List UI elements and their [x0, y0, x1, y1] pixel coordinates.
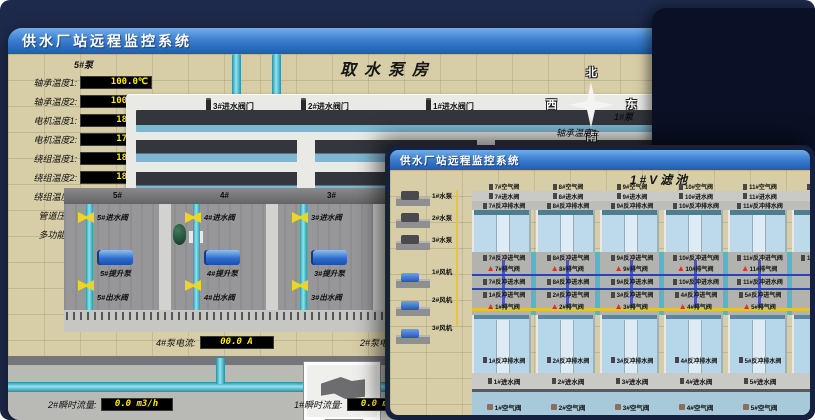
reading-label: 电机温度2:: [12, 133, 80, 146]
alarm-valve-icon: [616, 304, 621, 309]
filter-cell: [536, 210, 595, 252]
inlet-valve[interactable]: 8#进水阀: [536, 191, 600, 201]
valve-label: 2#反冲进气阀: [553, 290, 590, 299]
valve-icon: [680, 378, 684, 384]
exhaust-valve[interactable]: 4#排气阀: [664, 302, 728, 311]
valve-label: 5#进水阀: [750, 376, 777, 386]
backwash-air-valve[interactable]: 7#反冲进气阀: [472, 253, 536, 262]
valve-icon: [552, 378, 556, 384]
lift-pump-icon[interactable]: [97, 250, 133, 265]
equipment-unit[interactable]: 3#风机: [392, 318, 472, 346]
equipment-unit[interactable]: 1#风机: [392, 262, 472, 290]
valve-icon: [488, 378, 492, 384]
backwash-water-valve[interactable]: 9#反冲进水阀: [600, 277, 664, 286]
exhaust-valve[interactable]: 1#排气阀: [472, 302, 536, 311]
bay-inlet-label: 4#进水阀: [204, 212, 235, 223]
air-valve[interactable]: 4#空气阀: [664, 402, 728, 412]
valve-label: 4#反冲进气阀: [681, 290, 718, 299]
valve-icon: [611, 357, 615, 363]
alarm-valve-icon: [743, 266, 748, 271]
exhaust-valve[interactable]: 11#排气阀: [728, 264, 792, 273]
filter-cell: [472, 210, 531, 252]
valve-icon: [611, 203, 615, 209]
valve-label: 8#空气阀: [559, 182, 584, 191]
valve-label: 12#反冲进气阀: [807, 253, 810, 262]
valve-label: 8#反冲排水阀: [553, 201, 590, 210]
backwash-water-valve[interactable]: 10#反冲进水阀: [664, 277, 728, 286]
motor-icon: [401, 191, 419, 200]
equipment-label: 3#风机: [432, 322, 452, 332]
valve-label: 7#空气阀: [495, 182, 520, 191]
top-inlet-valve-row: 7#进水阀8#进水阀9#进水阀10#进水阀11#进水阀: [472, 191, 810, 201]
valve-label: 11#反冲进气阀: [743, 253, 783, 262]
valve-label: 11#排气阀: [750, 264, 778, 273]
valve-icon: [547, 279, 551, 285]
reading-label: 轴承温度1:: [12, 76, 80, 89]
equipment-unit[interactable]: 2#风机: [392, 290, 472, 318]
valve-icon: [615, 404, 621, 410]
inlet-valve[interactable]: 11#进水阀: [728, 191, 792, 201]
backwash-drain-valve[interactable]: 10#反冲排水阀: [664, 201, 728, 210]
exhaust-valve[interactable]: 10#排气阀: [664, 264, 728, 273]
valve-icon: [547, 357, 551, 363]
valve-icon: [673, 255, 677, 261]
backwash-drain-valve[interactable]: 5#反冲排水阀: [728, 355, 792, 365]
filter-grid: 7#空气阀8#空气阀9#空气阀10#空气阀11#空气阀12#空气阀 7#进水阀8…: [472, 182, 810, 415]
inlet-valve[interactable]: 10#进水阀: [664, 191, 728, 201]
scada-desktop: 供水厂站远程监控系统 取水泵房 5#泵 轴承温度1: 100.0℃ 轴承温度2:…: [0, 0, 815, 420]
reading-row: 轴承温度1: 100.0℃: [12, 75, 168, 89]
valve-label: 9#进水阀: [623, 192, 648, 201]
mid-backwash-air-row: 7#反冲进气阀8#反冲进气阀9#反冲进气阀10#反冲进气阀11#反冲进气阀12#…: [472, 253, 810, 262]
backwash-water-valve[interactable]: 7#反冲进水阀: [472, 277, 536, 286]
bay-number: 5#: [64, 188, 171, 204]
valve-icon: [679, 193, 683, 199]
valve-icon: [483, 292, 487, 298]
valve-label: 11#反冲排水阀: [743, 201, 783, 210]
low-backwash-drain-row: 1#反冲排水阀2#反冲排水阀3#反冲排水阀4#反冲排水阀5#反冲排水阀: [472, 355, 810, 365]
filter-cell: [792, 210, 810, 252]
equipment-label: 2#水泵: [432, 212, 452, 222]
bay-pump-label: 4#提升泵: [207, 268, 238, 279]
pump-house-scene-title: 取水泵房: [258, 56, 518, 80]
filter-cell: [664, 210, 723, 252]
valve-label: 5#排气阀: [751, 302, 776, 311]
reading-label: 电机温度1:: [12, 114, 80, 127]
valve-icon: [489, 193, 493, 199]
air-valve[interactable]: 5#空气阀: [728, 402, 792, 412]
pump-bay[interactable]: 4#进水阀 4#提升泵 4#出水阀: [171, 204, 278, 310]
valve-label: 11#反冲进水阀: [743, 277, 783, 286]
valve-label: 1#排气阀: [495, 302, 520, 311]
bay-outlet-label: 3#出水阀: [311, 292, 342, 303]
motor-icon: [401, 301, 419, 310]
backwash-air-valve[interactable]: 5#反冲进气阀: [728, 290, 792, 299]
valve-icon: [737, 203, 741, 209]
valve-label: 4#反冲排水阀: [681, 356, 718, 365]
valve-icon: [483, 357, 487, 363]
valve-icon: [801, 255, 805, 261]
backwash-air-valve[interactable]: 11#反冲进气阀: [728, 253, 792, 262]
valve-icon: [679, 184, 683, 190]
valve-icon: [673, 279, 677, 285]
valve-label: 7#反冲排水阀: [489, 201, 526, 210]
filter-pool-window-title: 供水厂站远程监控系统: [400, 153, 520, 168]
valve-label: 2#排气阀: [559, 302, 584, 311]
valve-label: 4#空气阀: [687, 402, 714, 412]
valve-label: 9#空气阀: [623, 182, 648, 191]
valve-icon: [616, 378, 620, 384]
equipment-label: 1#水泵: [432, 190, 452, 200]
valve-icon: [489, 184, 493, 190]
alarm-valve-icon: [552, 266, 557, 271]
backwash-water-valve[interactable]: 8#反冲进水阀: [536, 277, 600, 286]
backwash-air-valve[interactable]: 9#反冲进气阀: [600, 253, 664, 262]
air-valve[interactable]: 8#空气阀: [536, 182, 600, 191]
backwash-air-valve[interactable]: 12#反冲进气阀: [792, 253, 810, 262]
bay-number: 4#: [171, 188, 278, 204]
motor-icon: [401, 273, 419, 282]
riser-pipe-icon: [232, 54, 241, 98]
bay-inlet-label: 3#进水阀: [311, 212, 342, 223]
current-label: 4#泵电流:: [156, 336, 196, 349]
backwash-drain-valve[interactable]: 2#反冲排水阀: [536, 355, 600, 365]
alarm-valve-icon: [616, 266, 621, 271]
alarm-valve-icon: [744, 304, 749, 309]
backwash-air-valve[interactable]: 2#反冲进气阀: [536, 290, 600, 299]
exhaust-valve[interactable]: 9#排气阀: [600, 264, 664, 273]
inlet-valve[interactable]: 9#进水阀: [600, 191, 664, 201]
valve-icon: [739, 357, 743, 363]
valve-label: 7#进水阀: [495, 192, 520, 201]
valve-icon: [739, 292, 743, 298]
riser-pipe-icon: [272, 54, 281, 98]
valve-label: 8#排气阀: [559, 264, 584, 273]
reading-label: 绕组温度2:: [12, 171, 80, 184]
valve-icon: [679, 404, 685, 410]
backwash-drain-valve[interactable]: 9#反冲排水阀: [600, 201, 664, 210]
backwash-drain-valve[interactable]: 11#反冲排水阀: [728, 201, 792, 210]
valve-icon: [483, 279, 487, 285]
valve-label: 1#反冲排水阀: [489, 356, 526, 365]
valve-icon: [807, 184, 810, 190]
compass-north: 北: [586, 64, 597, 80]
valve-gallery: 7#反冲进气阀8#反冲进气阀9#反冲进气阀10#反冲进气阀11#反冲进气阀12#…: [472, 252, 810, 315]
valve-icon: [673, 203, 677, 209]
valve-label: 10#反冲进水阀: [679, 277, 719, 286]
equipment-unit[interactable]: 3#水泵: [392, 230, 472, 252]
valve-icon: [611, 255, 615, 261]
air-valve[interactable]: 12#空气阀: [792, 182, 810, 191]
valve-label: 2#空气阀: [559, 402, 586, 412]
valve-label: 8#进水阀: [559, 192, 584, 201]
bay-outlet-label: 5#出水阀: [97, 292, 128, 303]
backwash-drain-valve[interactable]: 7#反冲排水阀: [472, 201, 536, 210]
valve-label: 3#反冲排水阀: [617, 356, 654, 365]
pump-house-titlebar[interactable]: 供水厂站远程监控系统: [8, 28, 672, 54]
valve-label: 7#排气阀: [495, 264, 520, 273]
valve-icon: [617, 193, 621, 199]
valve-label: 3#反冲进气阀: [617, 290, 654, 299]
valve-icon: [611, 279, 615, 285]
valve-icon: [743, 404, 749, 410]
reading-label: 轴承温度2:: [12, 95, 80, 108]
air-valve[interactable]: 10#空气阀: [664, 182, 728, 191]
valve-label: 1#反冲进气阀: [489, 290, 526, 299]
reading-value: 100.0℃: [80, 76, 152, 89]
equipment-column: 1#水泵 2#水泵 3#水泵 1#风机: [392, 186, 472, 346]
valve-label: 10#反冲进气阀: [679, 253, 719, 262]
valve-label: 11#空气阀: [749, 182, 777, 191]
air-valve[interactable]: 3#空气阀: [600, 402, 664, 412]
pump-house-window-title: 供水厂站远程监控系统: [22, 31, 192, 51]
valve-label: 1#进水阀: [494, 376, 521, 386]
filter-cell: [600, 210, 659, 252]
flow-label: 1#瞬时流量:: [294, 398, 343, 411]
equipment-unit[interactable]: 1#水泵: [392, 186, 472, 208]
air-valve[interactable]: 7#空气阀: [472, 182, 536, 191]
valve-label: 10#进水阀: [685, 192, 713, 201]
motor-icon: [401, 235, 419, 244]
air-valve[interactable]: 9#空气阀: [600, 182, 664, 191]
equipment-label: 3#水泵: [432, 234, 452, 244]
exhaust-valve[interactable]: 3#排气阀: [600, 302, 664, 311]
bottom-air-valve-row: 1#空气阀2#空气阀3#空气阀4#空气阀5#空气阀: [472, 402, 810, 412]
bay-outlet-label: 4#出水阀: [204, 292, 235, 303]
backwash-air-valve[interactable]: 1#反冲进气阀: [472, 290, 536, 299]
window-filter-pool[interactable]: 供水厂站远程监控系统 1#V滤池 1#水泵 2#水泵: [385, 145, 815, 420]
flow-value: 0.0 m3/h: [101, 398, 173, 411]
upper-filter-cells: [472, 210, 810, 252]
valve-label: 5#反冲进气阀: [745, 290, 782, 299]
alarm-valve-icon: [680, 304, 685, 309]
valve-icon: [744, 378, 748, 384]
valve-icon: [617, 184, 621, 190]
valve-label: 2#进水阀: [558, 376, 585, 386]
equipment-label: 2#风机: [432, 294, 452, 304]
filter-pool-titlebar[interactable]: 供水厂站远程监控系统: [390, 150, 810, 170]
valve-label: 10#反冲排水阀: [679, 201, 719, 210]
valve-icon: [737, 255, 741, 261]
valve-icon: [547, 203, 551, 209]
alarm-valve-icon: [488, 266, 493, 271]
valve-icon: [551, 404, 557, 410]
filter-cell: [728, 210, 787, 252]
backwash-drain-valve[interactable]: 4#反冲排水阀: [664, 355, 728, 365]
valve-label: 4#进水阀: [686, 376, 713, 386]
backwash-air-valve[interactable]: 4#反冲进气阀: [664, 290, 728, 299]
inlet-valve[interactable]: 4#进水阀: [664, 376, 728, 386]
pipeline-equipment[interactable]: [304, 362, 380, 420]
butterfly-valve-icon: [321, 377, 365, 399]
valve-icon: [547, 255, 551, 261]
valve-label: 2#反冲排水阀: [553, 356, 590, 365]
equipment-label: 1#风机: [432, 266, 452, 276]
valve-icon: [487, 404, 493, 410]
alarm-valve-icon: [552, 304, 557, 309]
valve-label: 1#空气阀: [495, 402, 522, 412]
valve-label: 7#反冲进水阀: [489, 277, 526, 286]
pump-bay[interactable]: 5#进水阀 5#提升泵 5#出水阀: [64, 204, 171, 310]
pipe-stub-icon: [216, 358, 225, 384]
valve-icon: [743, 184, 747, 190]
backwash-drain-valve[interactable]: 3#反冲排水阀: [600, 355, 664, 365]
backwash-drain-valve[interactable]: 8#反冲排水阀: [536, 201, 600, 210]
motor-icon: [401, 213, 419, 222]
valve-label: 9#反冲进水阀: [617, 277, 654, 286]
backwash-drain-valve[interactable]: 1#反冲排水阀: [472, 355, 536, 365]
equipment-unit[interactable]: 2#水泵: [392, 208, 472, 230]
backwash-water-valve[interactable]: 11#反冲进水阀: [728, 277, 792, 286]
bay-inlet-label: 5#进水阀: [97, 212, 128, 223]
low-exhaust-row: 1#排气阀2#排气阀3#排气阀4#排气阀5#排气阀: [472, 302, 810, 311]
air-valve[interactable]: 1#空气阀: [472, 402, 536, 412]
exhaust-valve[interactable]: 5#排气阀: [728, 302, 792, 311]
low-backwash-air-row: 1#反冲进气阀2#反冲进气阀3#反冲进气阀4#反冲进气阀5#反冲进气阀: [472, 290, 810, 299]
exhaust-valve[interactable]: 2#排气阀: [536, 302, 600, 311]
mid-backwash-water-row: 7#反冲进水阀8#反冲进水阀9#反冲进水阀10#反冲进水阀11#反冲进水阀: [472, 277, 810, 286]
backwash-air-valve[interactable]: 10#反冲进气阀: [664, 253, 728, 262]
bay-number: 3#: [278, 188, 385, 204]
bay-pump-label: 3#提升泵: [314, 268, 345, 279]
valve-icon: [743, 193, 747, 199]
valve-label: 8#反冲进气阀: [553, 253, 590, 262]
current-value: 00.0 A: [200, 336, 274, 349]
pump5-header: 5#泵: [74, 58, 168, 71]
backwash-air-valve[interactable]: 8#反冲进气阀: [536, 253, 600, 262]
valve-icon: [553, 184, 557, 190]
mid-exhaust-row: 7#排气阀8#排气阀9#排气阀10#排气阀11#排气阀: [472, 264, 810, 273]
valve-label: 8#反冲进水阀: [553, 277, 590, 286]
valve-label: 10#空气阀: [685, 182, 713, 191]
inlet-valve[interactable]: 7#进水阀: [472, 191, 536, 201]
valve-label: 3#排气阀: [623, 302, 648, 311]
flow-label: 2#瞬时流量:: [48, 398, 97, 411]
exhaust-valve[interactable]: 7#排气阀: [472, 264, 536, 273]
valve-label: 3#进水阀: [622, 376, 649, 386]
air-valve[interactable]: 2#空气阀: [536, 402, 600, 412]
valve-label: 5#空气阀: [751, 402, 778, 412]
lift-pump-icon[interactable]: [204, 250, 240, 265]
valve-label: 9#排气阀: [623, 264, 648, 273]
lift-pump-icon[interactable]: [311, 250, 347, 265]
valve-label: 7#反冲进气阀: [489, 253, 526, 262]
valve-label: 11#进水阀: [749, 192, 777, 201]
backwash-air-valve[interactable]: 3#反冲进气阀: [600, 290, 664, 299]
top-air-valve-row: 7#空气阀8#空气阀9#空气阀10#空气阀11#空气阀12#空气阀: [472, 182, 810, 191]
alarm-valve-icon: [488, 304, 493, 309]
valve-label: 9#反冲进气阀: [617, 253, 654, 262]
inlet-valve[interactable]: 1#进水阀: [472, 376, 536, 386]
filter-pool-scene: 1#V滤池 1#水泵 2#水泵 3#水泵: [390, 170, 810, 415]
pump-bay[interactable]: 3#进水阀 3#提升泵 3#出水阀: [278, 204, 385, 310]
valve-label: 10#排气阀: [685, 264, 713, 273]
valve-icon: [675, 357, 679, 363]
valve-icon: [675, 292, 679, 298]
reading-label: 绕组温度1:: [12, 152, 80, 165]
valve-icon: [553, 193, 557, 199]
blue-header-pipe-icon: [472, 274, 810, 276]
air-channel: 1#空气阀2#空气阀3#空气阀4#空气阀5#空气阀: [472, 389, 810, 415]
alarm-valve-icon: [678, 266, 683, 271]
flow2-readout: 2#瞬时流量: 0.0 m3/h: [48, 398, 173, 411]
bay-pump-label: 5#提升泵: [100, 268, 131, 279]
valve-label: 3#空气阀: [623, 402, 650, 412]
valve-label: 4#排气阀: [687, 302, 712, 311]
inlet-valve[interactable]: 5#进水阀: [728, 376, 792, 386]
inlet-valve[interactable]: 2#进水阀: [536, 376, 600, 386]
valve-icon: [483, 203, 487, 209]
exhaust-valve[interactable]: 8#排气阀: [536, 264, 600, 273]
valve-icon: [547, 292, 551, 298]
valve-label: 9#反冲排水阀: [617, 201, 654, 210]
air-valve[interactable]: 11#空气阀: [728, 182, 792, 191]
inlet-valve[interactable]: 3#进水阀: [600, 376, 664, 386]
valve-icon: [611, 292, 615, 298]
bottom-inlet-valve-row: 1#进水阀2#进水阀3#进水阀4#进水阀5#进水阀: [472, 373, 810, 389]
motor-icon: [401, 329, 419, 338]
valve-label: 5#反冲排水阀: [745, 356, 782, 365]
top-backwash-drain-row: 7#反冲排水阀8#反冲排水阀9#反冲排水阀10#反冲排水阀11#反冲排水阀: [472, 201, 810, 210]
valve-icon: [483, 255, 487, 261]
valve-icon: [737, 279, 741, 285]
pump4-current: 4#泵电流: 00.0 A: [156, 336, 274, 349]
